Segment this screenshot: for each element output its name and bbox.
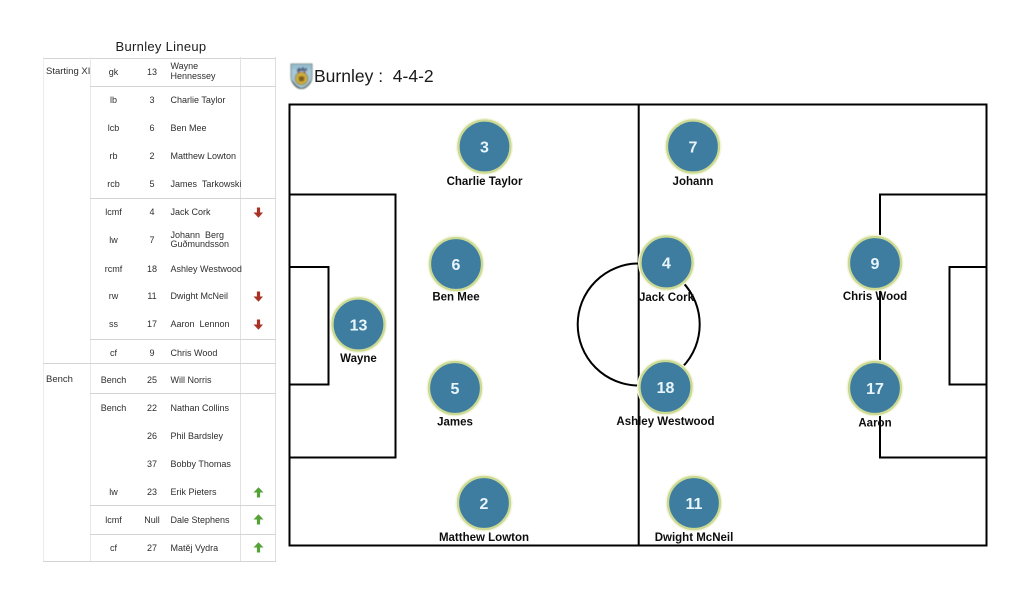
svg-text:4: 4 [662,256,671,273]
svg-text:Ben Mee: Ben Mee [432,292,479,304]
svg-text:6: 6 [452,257,461,274]
svg-text:9: 9 [871,256,880,273]
svg-text:13: 13 [350,318,368,335]
svg-text:Matthew Lowton: Matthew Lowton [439,532,529,544]
svg-text:18: 18 [657,380,675,397]
svg-text:7: 7 [689,140,698,157]
svg-text:Wayne: Wayne [340,353,377,365]
svg-text:Ashley Westwood: Ashley Westwood [616,416,714,428]
svg-text:James: James [437,417,473,429]
svg-text:17: 17 [866,381,884,398]
svg-text:5: 5 [451,381,460,398]
svg-text:11: 11 [686,496,703,513]
svg-text:Johann: Johann [673,176,714,188]
svg-text:2: 2 [480,496,489,513]
svg-text:Aaron: Aaron [858,418,891,430]
svg-text:Charlie Taylor: Charlie Taylor [447,176,523,188]
svg-text:Dwight McNeil: Dwight McNeil [655,532,734,544]
svg-text:3: 3 [480,140,489,157]
svg-text:Chris Wood: Chris Wood [843,291,907,303]
svg-text:Jack Cork: Jack Cork [639,292,695,304]
